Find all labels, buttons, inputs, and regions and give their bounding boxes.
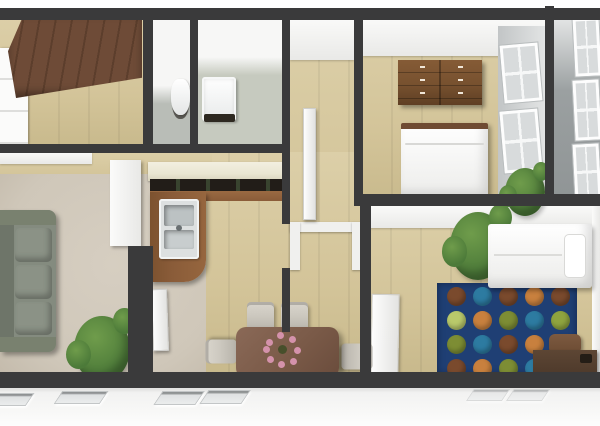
- dresser-knobs: [420, 66, 425, 68]
- window-glass: [503, 46, 539, 101]
- wall-wc-bathroom: [190, 8, 198, 148]
- rug-dot: [447, 335, 466, 354]
- window-glass: [503, 112, 540, 171]
- bedroom-bottom-open-door[interactable]: [370, 294, 399, 374]
- wall-bedroom-balcony: [545, 6, 554, 206]
- hallway-open-door[interactable]: [303, 108, 316, 220]
- single-bed[interactable]: [488, 224, 592, 288]
- sofa-armrest-bottom: [0, 337, 56, 352]
- double-bed-headboard: [401, 123, 488, 129]
- rug-dot: [525, 311, 544, 330]
- rug-dot: [447, 311, 466, 330]
- hallway-north-wall-face: [290, 18, 354, 60]
- rug-dot: [551, 287, 570, 306]
- dining-table[interactable]: [236, 327, 339, 378]
- wall-north-rooms-living: [0, 144, 290, 153]
- wall-dining-bedroom: [360, 204, 371, 374]
- rug-dot: [551, 311, 570, 330]
- rug-dot: [473, 335, 492, 354]
- hallway-opening-jamb-left: [290, 222, 300, 270]
- window-glass: [576, 147, 599, 198]
- wall-between-bedrooms: [354, 194, 600, 206]
- rug-dot: [499, 287, 518, 306]
- sofa[interactable]: [0, 210, 56, 352]
- sink-basin-1: [164, 205, 194, 226]
- desk[interactable]: [533, 350, 597, 374]
- right-edge-wall-face: [592, 206, 600, 374]
- rug-dot: [473, 311, 492, 330]
- single-bed-seam: [494, 254, 562, 256]
- potted-plant-corner[interactable]: [505, 168, 545, 216]
- flower-centerpiece[interactable]: [278, 345, 287, 354]
- wall-bathroom-hallway: [282, 8, 290, 224]
- rug-dot: [447, 287, 466, 306]
- wall-living-kitchen: [128, 246, 153, 372]
- wall-hallway-bedroom-top: [354, 8, 363, 206]
- floorplan-canvas: [0, 0, 600, 426]
- living-room-top-wall-face: [0, 152, 92, 164]
- rug-dot: [473, 287, 492, 306]
- toilet[interactable]: [171, 79, 190, 115]
- sofa-cushion: [15, 265, 52, 299]
- wall-bathroom-hallway-lower: [282, 268, 290, 332]
- rug-dot: [525, 287, 544, 306]
- balcony-window-1[interactable]: [573, 17, 600, 76]
- facade-window-2: [54, 391, 109, 404]
- single-bed-pillow: [564, 234, 586, 278]
- dining-chair-left[interactable]: [206, 340, 237, 364]
- window-glass: [576, 83, 599, 138]
- wall-wardrobe-wc: [143, 8, 153, 148]
- kitchen-sink[interactable]: [159, 199, 199, 259]
- wall-bottom: [0, 372, 600, 388]
- living-dining-open-door[interactable]: [151, 289, 169, 352]
- sink-basin-2: [164, 230, 194, 249]
- sofa-cushion: [15, 228, 52, 262]
- rug-dot: [499, 335, 518, 354]
- sofa-cushion: [15, 302, 52, 335]
- desk-lamp: [580, 354, 592, 363]
- balcony-window-3[interactable]: [573, 143, 600, 200]
- dresser[interactable]: [398, 60, 482, 105]
- bedroom-top-window-1[interactable]: [500, 42, 543, 103]
- double-bed[interactable]: [401, 123, 488, 198]
- wall-top: [0, 8, 600, 20]
- rug-dot: [499, 311, 518, 330]
- sink-faucet: [176, 225, 182, 231]
- bathroom-sink-base: [204, 114, 235, 122]
- balcony-window-2[interactable]: [572, 79, 600, 140]
- tall-cabinet[interactable]: [110, 160, 141, 246]
- double-bed-pillow-seam: [405, 143, 484, 145]
- window-glass: [576, 21, 599, 74]
- sofa-armrest-top: [0, 210, 56, 225]
